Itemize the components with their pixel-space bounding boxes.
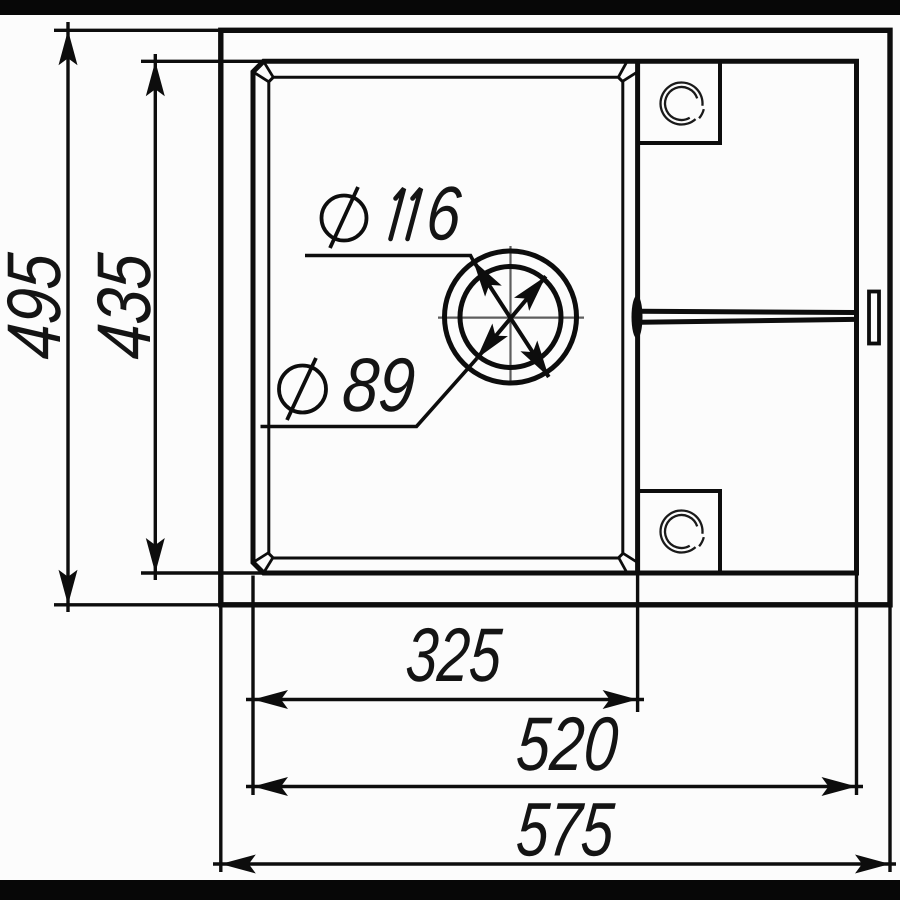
svg-text:6: 6 xyxy=(424,172,464,257)
svg-text:435: 435 xyxy=(82,250,167,362)
svg-text:495: 495 xyxy=(0,250,77,362)
svg-text:89: 89 xyxy=(340,343,418,428)
svg-text:575: 575 xyxy=(514,788,617,873)
svg-text:325: 325 xyxy=(403,613,504,698)
svg-text:520: 520 xyxy=(514,702,621,787)
